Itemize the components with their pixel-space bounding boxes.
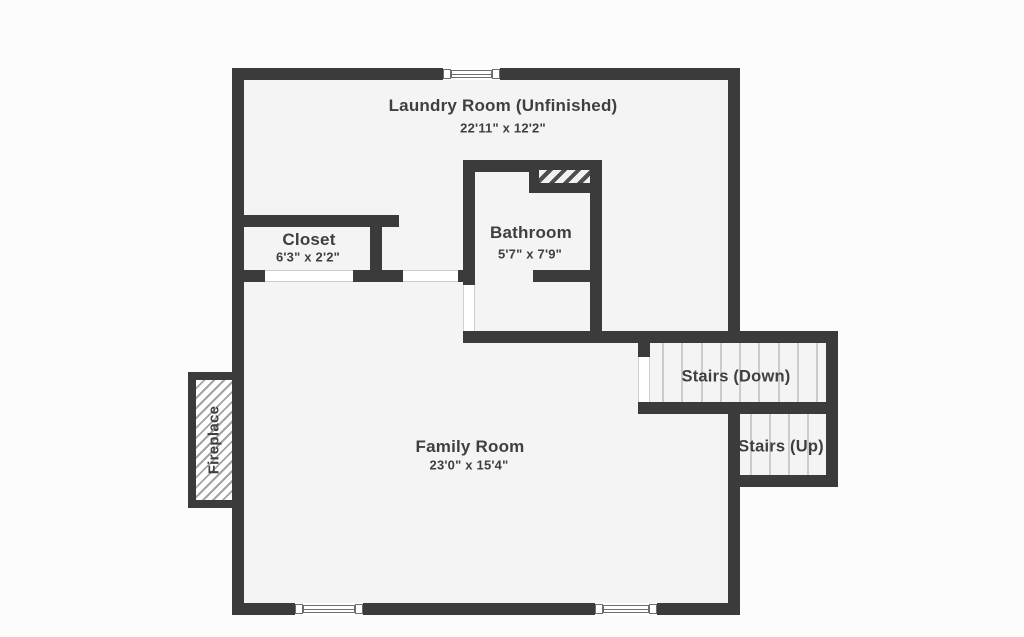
- wall-stairs-divider: [638, 402, 838, 414]
- door-opening-hall: [403, 270, 458, 282]
- window-pane: [603, 605, 649, 613]
- stair-tread-line: [797, 343, 799, 402]
- wall-left: [232, 68, 244, 615]
- bathroom-niche-hatch: [539, 170, 590, 183]
- wall-right-lower: [728, 402, 740, 615]
- fireplace-label: Fireplace: [206, 406, 223, 475]
- wall-bathroom-west: [463, 160, 475, 285]
- window-post: [649, 604, 657, 614]
- closet-dims: 6'3" x 2'2": [276, 250, 340, 265]
- stairs-down-label: Stairs (Down): [682, 368, 791, 387]
- stair-tread-line: [816, 343, 818, 402]
- door-opening-stairs: [638, 357, 650, 402]
- wall-stairs-bottom: [728, 475, 838, 487]
- family-room-dims: 23'0" x 15'4": [430, 458, 509, 473]
- door-opening-closet: [265, 270, 353, 282]
- window-post: [295, 604, 303, 614]
- wall-right-upper: [728, 68, 740, 343]
- window-bottom-left: [295, 603, 363, 615]
- bathroom-dims: 5'7" x 7'9": [498, 247, 562, 262]
- bathroom-label: Bathroom: [490, 223, 572, 243]
- window-post: [595, 604, 603, 614]
- wall-stairs-door-stub: [638, 343, 650, 357]
- wall-closet-bottom-a: [232, 270, 265, 282]
- window-post: [443, 69, 451, 79]
- wall-niche-bottom: [529, 183, 602, 193]
- fireplace: Fireplace: [188, 372, 240, 508]
- window-post: [492, 69, 500, 79]
- wall-bathroom-stub: [533, 270, 590, 282]
- closet-label: Closet: [282, 230, 335, 250]
- window-pane: [451, 70, 492, 78]
- window-post: [355, 604, 363, 614]
- window-top: [443, 68, 500, 80]
- floor-plan: Fireplace Laundry Room (Unfinished) 22'1…: [0, 0, 1024, 637]
- stair-tread-line: [662, 343, 664, 402]
- wall-stairs-top: [463, 331, 838, 343]
- stairs-up-label: Stairs (Up): [738, 438, 824, 457]
- window-bottom-right: [595, 603, 657, 615]
- window-pane: [303, 605, 355, 613]
- family-room-label: Family Room: [416, 437, 525, 457]
- laundry-room-dims: 22'11" x 12'2": [460, 121, 546, 136]
- door-opening-bathroom: [463, 285, 475, 331]
- laundry-room-label: Laundry Room (Unfinished): [389, 96, 618, 116]
- wall-closet-bottom-b: [353, 270, 403, 282]
- wall-stairs-right: [826, 331, 838, 487]
